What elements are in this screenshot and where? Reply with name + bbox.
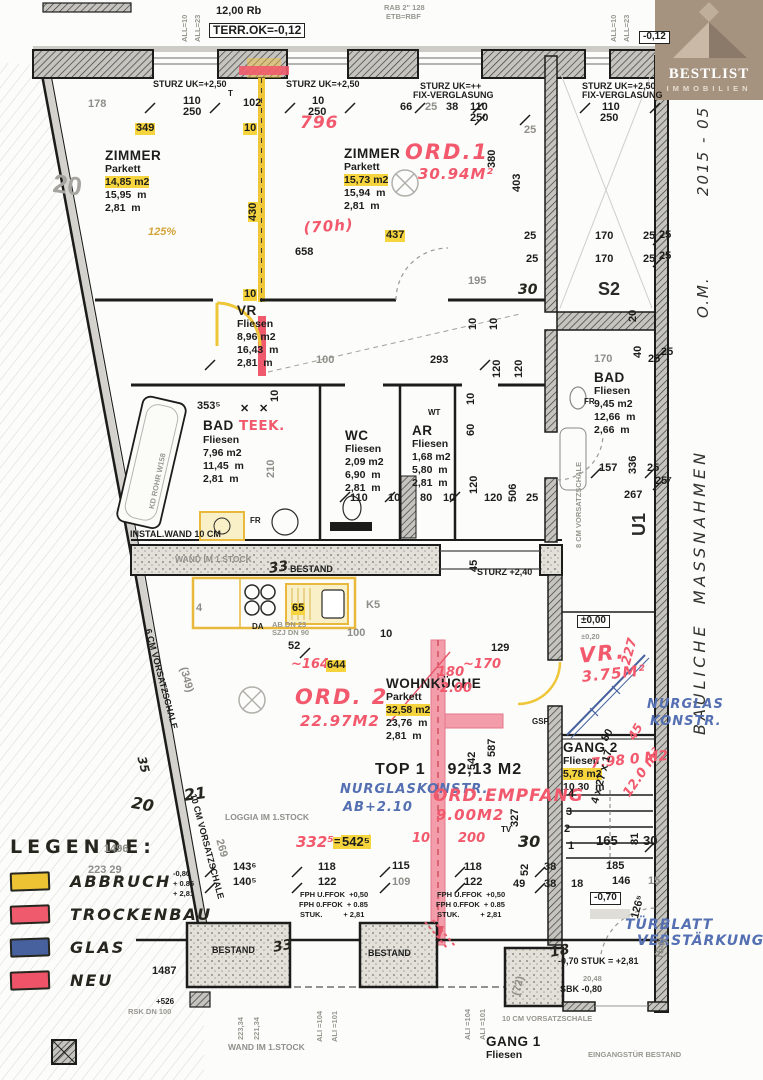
room-name: BAD [203, 418, 234, 433]
dimension-label: 40 [633, 346, 645, 358]
doorleaf-note: TÜRBLATT [625, 918, 713, 933]
dimension-label-grey: 109 [392, 877, 410, 889]
page-number-grey: 20 [51, 170, 83, 201]
basement-label: U1 [630, 513, 649, 536]
printed-note: FPH 0.FFOK + 0.85 [299, 901, 368, 909]
small-label-grey: ALI =104 [316, 1011, 324, 1042]
dimension-label-grey: 195 [468, 276, 486, 288]
small-label-grey: ±0,20 [581, 633, 600, 641]
room-spec-line: 6,90 m [345, 469, 381, 481]
printed-note: + 2,81 [173, 890, 194, 898]
small-label-grey: 8 CM VORSATZSCHALE [575, 462, 583, 548]
unit-total: TOP 1 92,13 M2 [375, 762, 522, 779]
room-spec-line: Parkett [105, 163, 141, 175]
printed-note: SBK -0,80 [560, 985, 602, 994]
small-label-grey: RAB 2" 128 [384, 4, 425, 12]
room-spec-line: 9,45 m2 [594, 398, 633, 410]
dimension-label: 380 [487, 150, 499, 168]
handwritten-black-annotation: 35 [135, 755, 151, 774]
legend-swatch [10, 904, 51, 924]
room-block-gang-1: GANG 1Fliesen [486, 1034, 541, 1062]
printed-note: -0,70 STUK = +2,81 [558, 957, 639, 966]
room-spec-line: 2,81 m [203, 473, 239, 485]
dimension-label: 52 [520, 864, 532, 876]
legend-swatch [10, 970, 51, 990]
small-label-grey: SZJ DN 90 [272, 629, 309, 637]
abbruch-door-arc2 [518, 662, 560, 704]
dimension-label: 165 [596, 834, 618, 848]
level-marker: -0,12 [639, 31, 670, 44]
small-label-grey: ALI =101 [331, 1011, 339, 1042]
dimension-label: 30 [643, 834, 657, 848]
legend: LEGENDE: ABBRUCHTROCKENBAUGLASNEU [10, 836, 212, 990]
printed-note-grey: WAND IM 1.STOCK [228, 1043, 305, 1052]
dimension-label: 140⁵ [233, 877, 257, 889]
ord1-area: 30.94M² [418, 167, 494, 183]
dimension-label-grey: 210 [266, 460, 278, 478]
handwritten-red-annotation: 180 [437, 666, 464, 680]
small-label-grey: 221,34 [253, 1017, 261, 1040]
dimension-label: 122 [464, 877, 482, 889]
room-spec-line: 2,81 m [105, 202, 141, 214]
dimension-label: 25 [526, 493, 538, 505]
dimension-label: 587 [487, 739, 499, 757]
printed-note: FIX-VERGLASUNG [413, 91, 494, 100]
ord-empfang-area: 9.00M2 [436, 808, 504, 824]
dimension-label: 120 [469, 476, 481, 494]
small-label: WT [428, 409, 440, 417]
room-spec-line: Fliesen [486, 1049, 522, 1061]
dimension-label: 403 [512, 174, 524, 192]
dimension-label: 10 [380, 629, 392, 641]
handwritten-red-annotation: 2.00 [440, 682, 472, 696]
dimension-label: 66 [400, 102, 412, 114]
small-label: TV [501, 826, 511, 834]
small-label: T [228, 90, 233, 98]
dimension-label: 25 [524, 231, 536, 243]
printed-note: STUK. + 2,81 [300, 911, 364, 919]
handwritten-red-annotation: ~170 [463, 658, 501, 672]
room-name: ZIMMER [344, 146, 400, 161]
small-label: GSP [532, 718, 549, 726]
terrace-level: TERR.OK=-0,12 [209, 23, 305, 38]
legend-item-trockenbau: TROCKENBAU [10, 905, 212, 924]
room-name: AR [412, 423, 433, 438]
room-spec-line: 5,80 m [412, 464, 448, 476]
handwritten-red-annotation: 332⁵ [296, 835, 334, 851]
dimension-label: 25 [643, 231, 655, 243]
glass-note-height: AB+2.10 [343, 801, 413, 815]
room-spec-line: Fliesen [345, 443, 381, 455]
room-spec-line: Parkett [344, 161, 380, 173]
dimension-label: 157 [599, 463, 617, 475]
dimension-label: 267 [624, 490, 642, 502]
handwritten-orange-annotation: 125% [148, 227, 176, 239]
door-arc [396, 248, 448, 300]
printed-note: BESTAND [290, 565, 333, 574]
legend-item-glas: GLAS [10, 938, 212, 957]
dimension-label-grey: 25 [425, 102, 437, 114]
room-spec-line: 11,45 m [203, 460, 244, 472]
room-spec-line: 8,96 m2 [237, 331, 276, 343]
printed-note: FPH 0.FFOK + 0.85 [436, 901, 505, 909]
dimension-label: 20 [628, 310, 640, 322]
top-wall [33, 3, 660, 78]
dimension-label: 38 [544, 879, 556, 891]
small-label-grey: ALL=23 [194, 15, 202, 42]
dimension-label: 110 [350, 493, 368, 505]
dimension-label: 52 [288, 641, 300, 653]
dimension-label: 10 [468, 318, 480, 330]
room-spec-line: 15,73 m2 [344, 174, 388, 186]
dimension-label-grey: 4 [196, 603, 202, 615]
handwritten-black-annotation: 30 [518, 283, 537, 298]
room-block-ar: ARFliesen1,68 m25,80 m2,81 m [412, 423, 451, 490]
printed-note: FIX-VERGLASUNG [582, 91, 663, 100]
room-spec-line: 23,76 m [386, 717, 427, 729]
dimension-label: 250 [600, 113, 618, 125]
dimension-label-grey: 100 [347, 628, 365, 640]
sightline-dashed [268, 314, 520, 372]
glass-note: NURGLAS [647, 698, 724, 712]
printed-note: + 0.85 [173, 880, 194, 888]
dimension-label-grey: 223 29 [88, 865, 122, 877]
dimension-label: 4 [568, 789, 574, 801]
room-spec-line: 2,81 m [344, 200, 380, 212]
room-spec-line: Fliesen [203, 434, 239, 446]
small-label-grey: ETB=RBF [386, 13, 421, 21]
printed-note: STUK. + 2,81 [437, 911, 501, 919]
room-spec-line: Fliesen [594, 385, 630, 397]
room-block-vr: VRFliesen8,96 m216,43 m2,81 m [237, 303, 278, 370]
room-name: WC [345, 428, 369, 443]
printed-note: STURZ UK=+2,50 [286, 80, 360, 89]
room-block-bad: BADFliesen9,45 m212,66 m2,66 m [594, 370, 635, 437]
room-spec-line: 2,81 m [412, 477, 448, 489]
room-name: VR [237, 303, 257, 318]
dimension-label: 10 [388, 493, 400, 505]
handwritten-red-annotation: 10 [412, 832, 430, 846]
dimension-label: 129 [491, 643, 509, 655]
legend-label: TROCKENBAU [70, 905, 212, 924]
printed-note-grey: WAND IM 1.STOCK [175, 555, 252, 564]
right-outer-wall [655, 56, 668, 1012]
printed-note: -0,80 [173, 870, 190, 878]
trockenbau-mark [239, 66, 289, 75]
scanned-floorplan-page: BESTLIST IMMOBILIEN 2015 - 05 O.M. BAULI… [0, 0, 763, 1080]
dimension-label-grey: 1496 [104, 844, 128, 856]
grey-level-box [590, 909, 630, 919]
bathtub [116, 395, 188, 530]
staircase-label: S2 [598, 280, 620, 299]
dimension-label: 118 [464, 862, 482, 874]
room-spec-line: 2,09 m2 [345, 456, 384, 468]
printed-note: INSTAL.WAND 10 CM [130, 530, 221, 539]
room-spec-line: 15,94 m [344, 187, 385, 199]
room-block-zimmer: ZIMMERParkett14,85 m215,95 m2,81 m [105, 148, 161, 215]
small-label-grey: ALI =101 [479, 1009, 487, 1040]
dimension-label: 3 [566, 807, 572, 819]
room-spec-line: 7,96 m2 [203, 447, 242, 459]
handwritten-red-annotation: ~164 [291, 658, 329, 672]
level-marker: ±0,00 [577, 615, 610, 628]
room-spec-line: 14,85 m2 [105, 176, 149, 188]
small-label: DA [252, 623, 264, 631]
dimension-label: 327 [510, 809, 522, 827]
small-label: FR [584, 398, 595, 406]
ord2-annotation: ORD. 2 [295, 686, 388, 708]
dimension-label-grey: K5 [366, 600, 380, 612]
drain-box [52, 1040, 76, 1064]
printed-note: STURZ +2,40 [477, 568, 532, 577]
handwritten-black-annotation: 33 [268, 559, 289, 576]
dimension-label-highlighted: 10 [243, 289, 257, 301]
legend-item-neu: NEU [10, 971, 212, 990]
dimension-label: 18 [571, 879, 583, 891]
small-label: FR [250, 517, 261, 525]
dimension-label: 170 [595, 231, 613, 243]
dimension-label: 118 [318, 862, 336, 874]
room-name: BAD [594, 370, 625, 385]
abbruch-wall [258, 78, 265, 302]
room-spec-line: Parkett [386, 691, 422, 703]
dimension-label: 506 [508, 484, 520, 502]
dimension-label: 25 [648, 354, 660, 366]
ord-empfang-annotation: ORD.EMPFANG [433, 788, 584, 806]
legend-label: GLAS [70, 938, 125, 957]
dimension-label: ✕ [240, 404, 249, 416]
dimension-label: 60 [466, 424, 478, 436]
dimension-label: 336 [628, 456, 640, 474]
dimension-label: 1 [568, 841, 574, 853]
printed-note: FPH U.FFOK +0,50 [300, 891, 368, 899]
level-marker: -0,70 [590, 892, 621, 905]
room-spec-line: 1,68 m2 [412, 451, 451, 463]
dimension-label: 250 [470, 113, 488, 125]
printed-note: FPH U.FFOK +0,50 [437, 891, 505, 899]
dimension-label: 143⁶ [233, 862, 256, 874]
dimension-label: ✕ [259, 404, 268, 416]
dimension-label: 1487 [152, 966, 176, 978]
dimension-label: 49 [513, 879, 525, 891]
dimension-label: 658 [295, 247, 313, 259]
sheet-date-note: 2015 - 05 [694, 106, 712, 196]
handwritten-blue-annotation: KONSTR. [650, 715, 722, 729]
dimension-label: 170 [595, 254, 613, 266]
bestlist-logo: BESTLIST IMMOBILIEN [655, 0, 763, 100]
small-label-grey: ALL=10 [610, 15, 618, 42]
dimension-label-grey: 100 [316, 355, 334, 367]
legend-swatch [10, 871, 51, 891]
dimension-label-highlighted: 10 [243, 123, 257, 135]
ord2-area: 22.97M2 [300, 714, 380, 730]
printed-note: STURZ UK=+2,50 [153, 80, 227, 89]
room-spec-line: 2,66 m [594, 424, 630, 436]
dimension-label: 102 [243, 98, 261, 110]
handwritten-red-annotation: 200 [458, 832, 485, 846]
dimension-label: 10 [466, 393, 478, 405]
dimension-label: 120 [514, 360, 526, 378]
dimension-label: 38 [544, 862, 556, 874]
room-spec-line: 32,58 m2 [386, 704, 430, 716]
legend-label: NEU [70, 971, 113, 990]
handwritten-black-annotation: 20 [130, 795, 155, 815]
dimension-label-highlighted: 349 [135, 123, 155, 135]
room-spec-line: 2,81 m [237, 357, 273, 369]
dimension-label-highlighted: 65 [291, 603, 305, 615]
dimension-label: 250 [183, 107, 201, 119]
printed-note: BESTAND [212, 946, 255, 955]
dimension-label: 2 [564, 824, 570, 836]
sheet-author-note: O.M. [694, 276, 712, 318]
dimension-label-highlighted: 644 [326, 660, 346, 672]
sheet-title-note: BAULICHE MASSNAHMEN [690, 449, 709, 735]
room-spec-line: Fliesen [237, 318, 273, 330]
dimension-label-highlighted: 542⁵ [341, 835, 371, 849]
dimension-label: 146 [612, 876, 630, 888]
dimension-label-highlighted: 437 [385, 230, 405, 242]
dimension-label: 10 [443, 493, 455, 505]
ord1-annotation: ORD.1 [405, 141, 489, 163]
small-label-grey: 20,48 [583, 975, 602, 983]
small-label-grey: ALL=23 [623, 15, 631, 42]
dimension-label: 25 [647, 463, 659, 475]
dimension-label-grey: 170 [594, 354, 612, 366]
printed-note: BESTAND [368, 949, 411, 958]
dimension-label: 25 [643, 254, 655, 266]
small-label-grey: ALI =104 [464, 1009, 472, 1040]
printed-note-grey: LOGGIA IM 1.STOCK [225, 813, 309, 822]
room-spec-line: 16,43 m [237, 344, 278, 356]
room-name: GANG 1 [486, 1034, 541, 1049]
logo-subtitle: IMMOBILIEN [655, 84, 763, 93]
room-name-red-annotation: TEEK. [234, 418, 285, 434]
handwritten-red-dimension: 796 [300, 115, 339, 133]
dimension-label-highlighted: 430 [248, 202, 260, 222]
room-block-wc: WCFliesen2,09 m26,90 m2,81 m [345, 428, 384, 495]
room-name: ZIMMER [105, 148, 161, 163]
room-spec-line: 2,81 m [386, 730, 422, 742]
dimension-label-grey: 25 [524, 125, 536, 137]
handwritten-black-annotation: 30 [518, 834, 540, 851]
dimension-label: 25 [659, 251, 671, 263]
small-label-grey: 223,34 [237, 1017, 245, 1040]
dimension-label: 38 [446, 102, 458, 114]
room-spec-line: 15,95 m [105, 189, 146, 201]
dimension-label: 25 [659, 230, 671, 242]
handwritten-black-annotation: 21 [183, 785, 207, 805]
dimension-label: 185 [606, 861, 624, 873]
dimension-label: 353⁵ [197, 401, 221, 413]
small-label-grey: EINGANGSTÜR BESTAND [588, 1051, 681, 1059]
dimension-label: 25 [526, 254, 538, 266]
dimension-label: 120 [492, 360, 504, 378]
dimension-label: 10 [489, 318, 501, 330]
dimension-label: 115 [392, 861, 410, 873]
room-block-zimmer: ZIMMERParkett15,73 m215,94 m2,81 m [344, 146, 400, 213]
dimension-label: 25⁷ [655, 476, 672, 488]
small-label-grey: RSK DN 100 [128, 1008, 171, 1016]
dimension-label: 25 [661, 347, 673, 359]
dimension-label: 120 [484, 493, 502, 505]
legend-swatch [10, 937, 51, 957]
dimension-label: 10 [270, 390, 282, 402]
logo-title: BESTLIST [655, 66, 763, 83]
small-label-grey: 10 CM VORSATZSCHALE [502, 1015, 592, 1023]
room-spec-line: 12,66 m [594, 411, 635, 423]
handwritten-black-annotation: 33 [272, 938, 294, 956]
dimension-label: 80 [420, 493, 432, 505]
small-label-grey: ALL=10 [181, 15, 189, 42]
small-label: +526 [156, 998, 174, 1006]
dimension-label: 81 [630, 833, 642, 845]
dimension-label-grey: 15 [648, 876, 660, 888]
dimension-label: 12,00 Rb [216, 6, 261, 18]
handwritten-red-annotation: (70h) [303, 217, 354, 236]
room-spec-line: Fliesen [412, 438, 448, 450]
washing-machine [272, 509, 298, 535]
dimension-label-grey: 178 [88, 99, 106, 111]
dimension-label: 122 [318, 877, 336, 889]
dimension-label: 293 [430, 355, 448, 367]
